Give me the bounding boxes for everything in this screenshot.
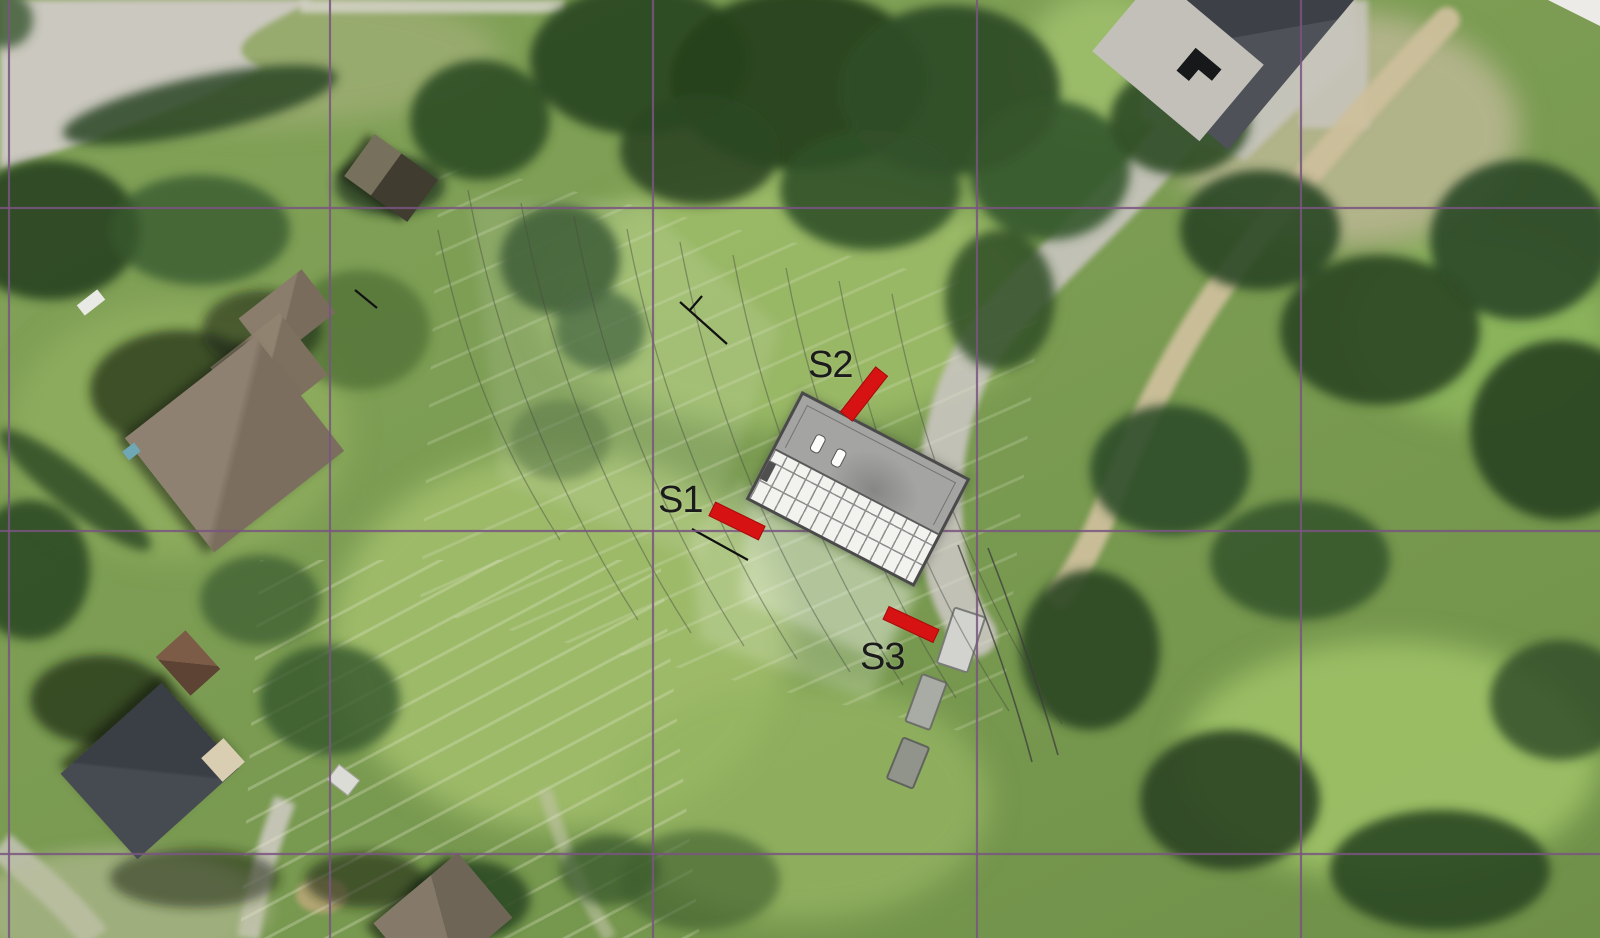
section-label-s3: S3 — [860, 638, 904, 676]
aerial-site-plan: S1 S2 S3 — [0, 0, 1600, 938]
section-label-s2: S2 — [808, 346, 852, 384]
section-label-s1: S1 — [658, 481, 702, 519]
